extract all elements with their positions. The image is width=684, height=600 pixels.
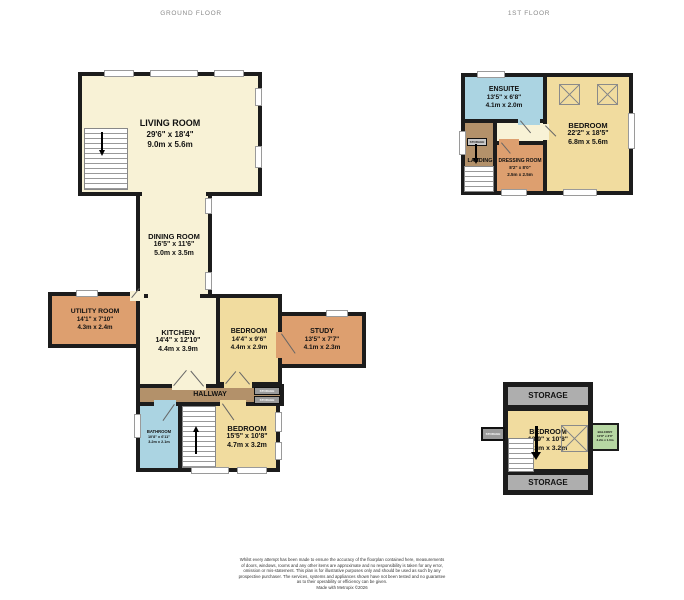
wall-opening bbox=[148, 290, 200, 300]
storage-top-name: STORAGE bbox=[528, 391, 567, 401]
bedroom-bottom-name: BEDROOM bbox=[226, 424, 267, 433]
floorplan-canvas: GROUND FLOOR 1ST FLOOR LIVING ROOM 29'6"… bbox=[0, 0, 684, 600]
down-arrow-icon bbox=[98, 132, 106, 156]
window bbox=[205, 198, 212, 214]
window bbox=[563, 189, 597, 196]
window bbox=[255, 146, 262, 168]
storage-left: STORAGE bbox=[481, 427, 505, 441]
window bbox=[255, 88, 262, 106]
first-floor-label: 1ST FLOOR bbox=[424, 10, 634, 17]
study-dims-metric: 4.1m x 2.3m bbox=[304, 344, 341, 352]
balcony: BALCONY 10'8" x 3'3" 3.2m x 1.0m bbox=[591, 423, 619, 451]
metropix-credit: Made with Metropix ©2026 bbox=[92, 585, 592, 591]
window bbox=[477, 71, 505, 78]
disclaimer: Whilst every attempt has been made to en… bbox=[92, 557, 592, 591]
ensuite-dims-metric: 4.1m x 2.0m bbox=[486, 102, 523, 110]
bathroom-name: BATHROOM bbox=[147, 429, 171, 435]
landing-name: LANDING bbox=[455, 158, 505, 165]
study-dims-imperial: 13'5" x 7'7" bbox=[304, 336, 341, 344]
dining-room-dims-imperial: 16'5" x 11'6" bbox=[148, 241, 200, 250]
dressing-room: DRESSING ROOM 8'2" x 8'0" 2.5m x 2.5m bbox=[493, 141, 547, 195]
up-arrow-icon bbox=[192, 426, 200, 454]
window bbox=[76, 290, 98, 297]
study: STUDY 13'5" x 7'7" 4.1m x 2.3m bbox=[278, 312, 366, 368]
window bbox=[459, 131, 466, 155]
living-room-dims-imperial: 29'6" x 18'4" bbox=[140, 130, 201, 140]
kitchen-dims-imperial: 14'4" x 12'10" bbox=[155, 337, 200, 346]
bedroom-first-floor: BEDROOM 22'2" x 18'5" 6.8m x 5.6m bbox=[543, 73, 633, 195]
ground-floor-label: GROUND FLOOR bbox=[86, 10, 296, 17]
bathroom: BATHROOM 10'8" x 6'11" 3.2m x 2.1m bbox=[136, 402, 182, 472]
window bbox=[150, 70, 198, 77]
ensuite-name: ENSUITE bbox=[486, 86, 523, 95]
kitchen: KITCHEN 14'4" x 12'10" 4.4m x 3.9m bbox=[136, 294, 220, 388]
window bbox=[275, 412, 282, 432]
bedroom-first-floor-dims-metric: 6.8m x 5.6m bbox=[567, 139, 608, 148]
window bbox=[326, 310, 348, 317]
skylight-icon bbox=[559, 84, 580, 105]
storage-bottom: STORAGE bbox=[503, 470, 593, 495]
dining-room: DINING ROOM 16'5" x 11'6" 5.0m x 3.5m bbox=[136, 192, 212, 298]
bedroom-middle-name: BEDROOM bbox=[231, 328, 268, 337]
living-room-name: LIVING ROOM bbox=[140, 118, 201, 129]
window bbox=[104, 70, 134, 77]
utility-room: UTILITY ROOM 14'1" x 7'10" 4.3m x 2.4m bbox=[48, 292, 142, 348]
bedroom-first-floor-name: BEDROOM bbox=[567, 121, 608, 130]
window bbox=[275, 442, 282, 460]
skylight-icon bbox=[561, 425, 588, 452]
utility-room-name: UTILITY ROOM bbox=[71, 308, 120, 316]
wall-opening bbox=[142, 190, 206, 199]
down-arrow-icon bbox=[530, 426, 542, 460]
window bbox=[501, 189, 527, 196]
window bbox=[134, 414, 141, 438]
staircase-landing bbox=[464, 166, 494, 192]
bedroom-middle-dims-imperial: 14'4" x 9'6" bbox=[231, 336, 268, 344]
storage-bottom-name: STORAGE bbox=[528, 478, 567, 488]
bathroom-dims-metric: 3.2m x 2.1m bbox=[147, 440, 171, 445]
window bbox=[214, 70, 244, 77]
bedroom-bottom-dims-imperial: 15'5" x 10'8" bbox=[226, 433, 267, 442]
window bbox=[205, 272, 212, 290]
window bbox=[191, 467, 229, 474]
hall-storage-closet-1: STORAGE bbox=[254, 387, 280, 395]
hallway-name: HALLWAY bbox=[193, 391, 227, 400]
utility-room-dims-metric: 4.3m x 2.4m bbox=[71, 324, 120, 332]
bedroom-first-floor-dims-imperial: 22'2" x 18'5" bbox=[567, 130, 608, 139]
bedroom-middle-dims-metric: 4.4m x 2.9m bbox=[231, 344, 268, 352]
ensuite-dims-imperial: 13'5" x 6'8" bbox=[486, 94, 523, 102]
study-name: STUDY bbox=[304, 328, 341, 337]
kitchen-name: KITCHEN bbox=[155, 328, 200, 337]
ensuite: ENSUITE 13'5" x 6'8" 4.1m x 2.0m bbox=[461, 73, 547, 123]
balcony-dims-metric: 3.2m x 1.0m bbox=[596, 439, 613, 443]
window bbox=[237, 467, 267, 474]
staircase-living-room bbox=[84, 128, 128, 190]
kitchen-dims-metric: 4.4m x 3.9m bbox=[155, 346, 200, 355]
dining-room-name: DINING ROOM bbox=[148, 232, 200, 241]
hall-storage-closet-2: STORAGE bbox=[254, 396, 280, 404]
dressing-room-dims-metric: 2.5m x 2.5m bbox=[498, 172, 541, 178]
window bbox=[628, 113, 635, 149]
dining-room-dims-metric: 5.0m x 3.5m bbox=[148, 250, 200, 259]
living-room-dims-metric: 9.0m x 5.6m bbox=[140, 140, 201, 150]
utility-room-dims-imperial: 14'1" x 7'10" bbox=[71, 316, 120, 324]
bedroom-middle: BEDROOM 14'4" x 9'6" 4.4m x 2.9m bbox=[216, 294, 282, 386]
skylight-icon bbox=[597, 84, 618, 105]
bedroom-bottom-dims-metric: 4.7m x 3.2m bbox=[226, 442, 267, 451]
